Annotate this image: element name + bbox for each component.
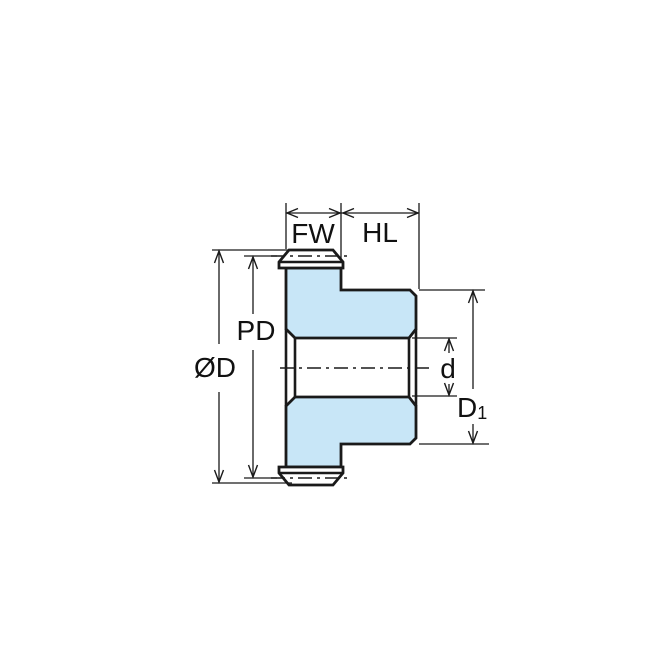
tooth-top — [279, 250, 343, 268]
label-pitch-diameter: PD — [237, 315, 276, 346]
tooth-bottom — [279, 467, 343, 485]
label-face-width: FW — [291, 218, 335, 249]
label-hub-diameter-subscript: 1 — [477, 403, 487, 423]
label-hub-length: HL — [362, 217, 398, 248]
gear-dimension-diagram: FW HL ØD PD d D1 — [0, 0, 670, 670]
gear-body-lower — [286, 397, 416, 467]
gear-body-upper — [286, 268, 416, 338]
label-hub-diameter-base: D — [457, 392, 477, 423]
label-bore-diameter: d — [440, 353, 456, 384]
label-hub-diameter: D1 — [457, 392, 487, 423]
diagram-svg: FW HL ØD PD d D1 — [0, 0, 670, 670]
label-outside-diameter: ØD — [194, 352, 236, 383]
